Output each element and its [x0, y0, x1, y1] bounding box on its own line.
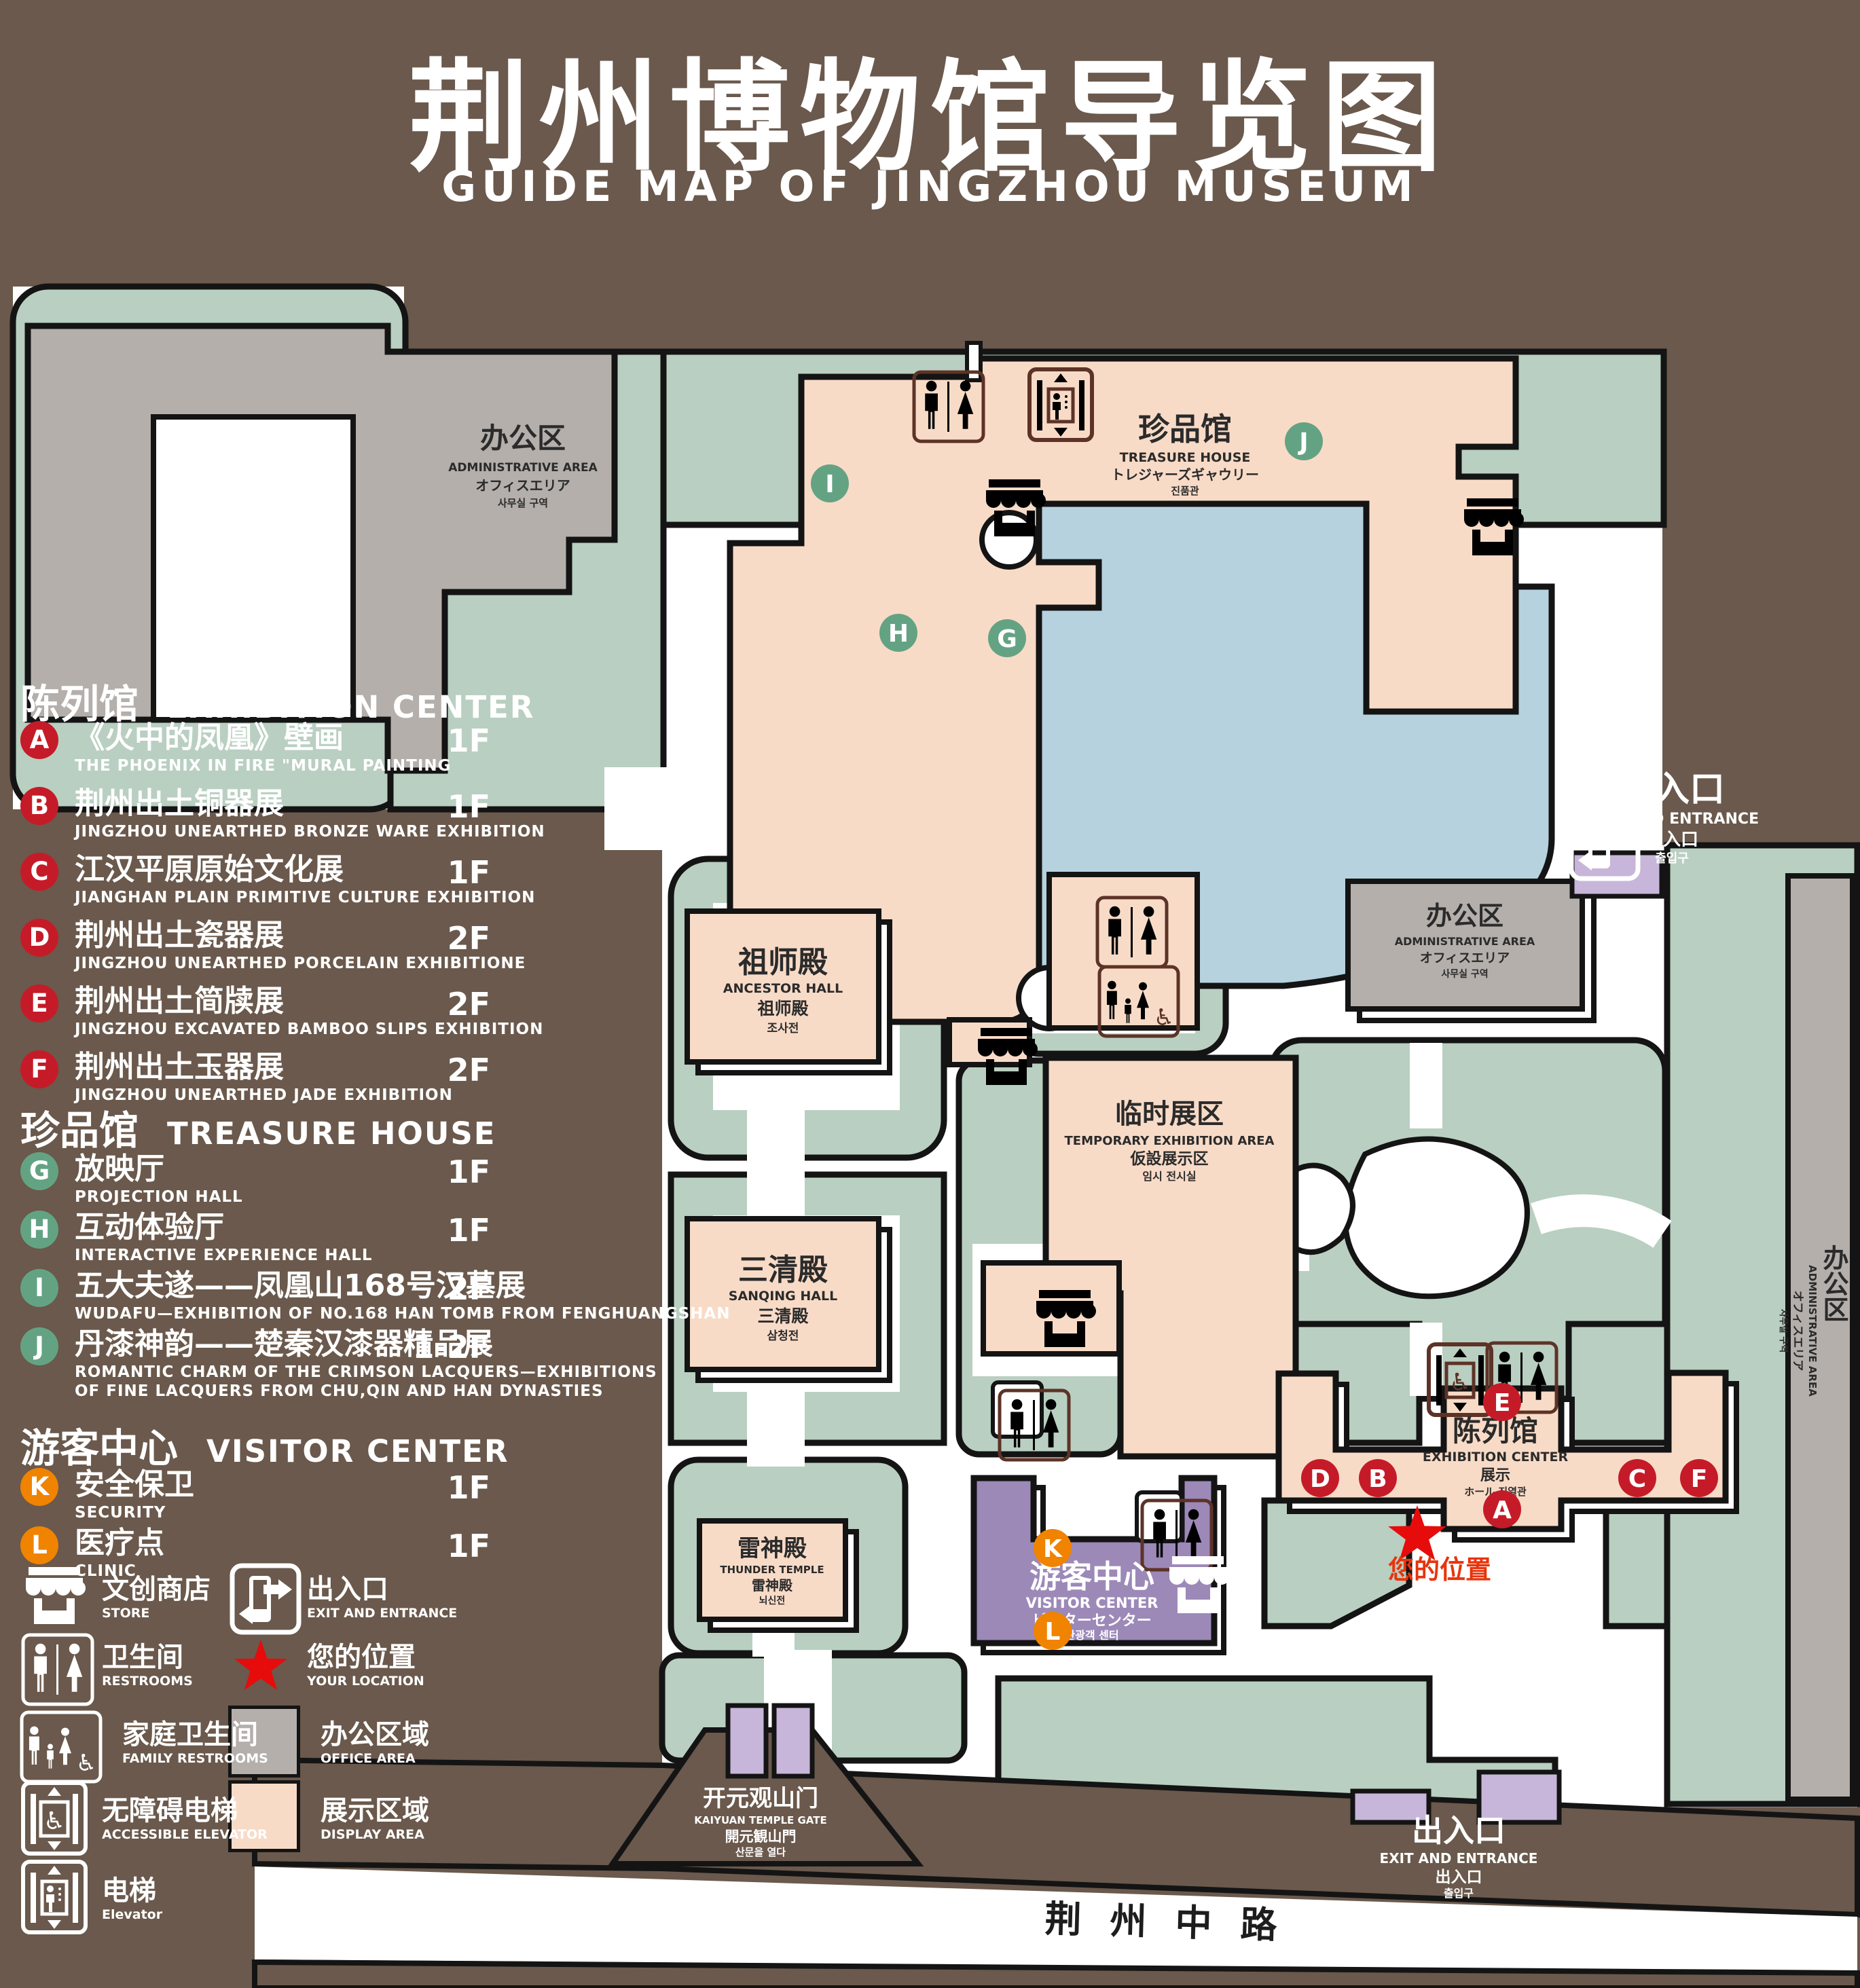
gate-label-zh: 开元观山门	[703, 1785, 818, 1812]
marker-F: F	[1680, 1459, 1718, 1497]
badge-a: A	[20, 721, 58, 759]
admin1-label-en: ADMINISTRATIVE AREA	[448, 461, 598, 475]
thunder-temple-label-zh: 雷神殿	[737, 1535, 807, 1562]
marker-K: K	[1034, 1529, 1072, 1567]
badge-c: C	[20, 853, 58, 891]
ancestor-hall-label-zh2: 祖师殿	[757, 999, 809, 1018]
legend-your-location: 您的位置YOUR LOCATION	[307, 1642, 424, 1689]
family-restroom-icon	[22, 1712, 101, 1782]
temporary-exhibition-label-en: TEMPORARY EXHIBITION AREA	[1065, 1134, 1275, 1148]
legend-item-d: D 荆州出土瓷器展 2F JINGZHOU UNEARTHED PORCELAI…	[20, 917, 490, 973]
marker-B: B	[1359, 1459, 1397, 1497]
thunder-temple-label-zh2: 雷神殿	[752, 1577, 793, 1594]
admin2-label-en: ADMINISTRATIVE AREA	[1395, 935, 1535, 948]
ancestor-hall-label-en: ANCESTOR HALL	[723, 981, 843, 996]
svg-text:C: C	[1628, 1465, 1646, 1493]
exhibition-center-label-zh2: 展示	[1480, 1467, 1510, 1484]
svg-text:オフィスエリア: オフィスエリア	[1791, 1291, 1804, 1372]
svg-text:ADMINISTRATIVE AREA: ADMINISTRATIVE AREA	[1806, 1265, 1819, 1397]
svg-text:办公区: 办公区	[1819, 1245, 1848, 1322]
badge-g: G	[20, 1152, 58, 1190]
badge-i: I	[20, 1269, 58, 1307]
svg-text:K: K	[1043, 1535, 1063, 1563]
gate-label-en: KAIYUAN TEMPLE GATE	[694, 1814, 826, 1826]
legend-family-restrooms: 家庭卫生间FAMILY RESTROOMS	[122, 1719, 268, 1767]
exit-bottom-label-zh: 出入口	[1412, 1812, 1506, 1849]
badge-j: J	[20, 1327, 58, 1365]
marker-A: A	[1483, 1490, 1521, 1528]
svg-text:L: L	[1045, 1618, 1061, 1646]
marker-I: I	[811, 464, 849, 502]
legend-office-area: 办公区域OFFICE AREA	[321, 1719, 429, 1767]
exit-bottom-label-ko: 출입구	[1444, 1887, 1474, 1900]
svg-text:사무실 구역: 사무실 구역	[1778, 1309, 1789, 1352]
sanqing-hall-label-zh2: 三清殿	[757, 1306, 809, 1326]
exit-top-label-ko: 출입구	[1655, 851, 1689, 866]
svg-text:D: D	[1310, 1465, 1330, 1493]
svg-text:A: A	[1493, 1496, 1512, 1524]
section-visitor-center: 游客中心VISITOR CENTER	[20, 1416, 632, 1473]
treasure-house-label-zh: 珍品馆	[1138, 411, 1232, 447]
admin1-label-zh: 办公区	[480, 422, 566, 455]
thunder-temple-label-ko: 뇌신전	[759, 1595, 786, 1606]
thunder-temple-label-en: THUNDER TEMPLE	[720, 1564, 824, 1576]
visitor-center-label-ko: 관광객 센터	[1065, 1629, 1118, 1642]
badge-f: F	[20, 1050, 58, 1088]
legend-restrooms: 卫生间RESTROOMS	[102, 1642, 193, 1689]
visitor-center-label-en: VISITOR CENTER	[1026, 1595, 1159, 1611]
restroom-icon	[23, 1635, 92, 1704]
svg-text:I: I	[825, 471, 834, 498]
legend-item-f: F 荆州出土玉器展 2F JINGZHOU UNEARTHED JADE EXH…	[20, 1049, 490, 1105]
legend-item-h: H 互动体验厅 1F INTERACTIVE EXPERIENCE HALL	[20, 1209, 490, 1265]
legend-item-k: K 安全保卫 1F SECURITY	[20, 1467, 490, 1522]
legend-item-c: C 江汉平原原始文化展 1F JIANGHAN PLAIN PRIMITIVE …	[20, 851, 490, 907]
exit-bottom-label-en: EXIT AND ENTRANCE	[1380, 1850, 1538, 1866]
legend-item-a: A 《火中的凤凰》壁画 1F THE PHOENIX IN FIRE "MURA…	[20, 720, 490, 775]
marker-J: J	[1285, 422, 1323, 460]
treasure-house-label-ja: トレジャーズギャウリー	[1111, 466, 1259, 483]
legend-item-j: J 丹漆神韵——楚秦汉漆器精品展 1-2F ROMANTIC CHARM OF …	[20, 1326, 490, 1401]
section-treasure-house: 珍品馆TREASURE HOUSE	[20, 1099, 632, 1156]
location-star-icon	[234, 1640, 287, 1690]
svg-text:J: J	[1297, 428, 1308, 456]
elevator-icon	[23, 1862, 86, 1932]
exit-top-label-zh: 出入口	[1619, 769, 1725, 810]
ancestor-hall-label-ko: 조사전	[767, 1022, 799, 1035]
marker-H: H	[879, 614, 917, 652]
legend-exit: 出入口EXIT AND ENTRANCE	[307, 1574, 457, 1621]
admin1-label-ko: 사무실 구역	[498, 497, 548, 509]
sanqing-hall-label-zh: 三清殿	[738, 1253, 828, 1287]
temporary-exhibition-label-zh: 临时展区	[1115, 1099, 1224, 1130]
marker-C: C	[1618, 1459, 1656, 1497]
exit-top-label-zh2: 出入口	[1645, 830, 1698, 850]
svg-text:G: G	[997, 625, 1017, 653]
marker-E: E	[1483, 1383, 1521, 1421]
svg-text:E: E	[1494, 1389, 1511, 1417]
accessible-elevator-icon	[23, 1783, 86, 1854]
svg-text:F: F	[1691, 1465, 1708, 1493]
legend-accessible-elevator: 无障碍电梯ACCESSIBLE ELEVATOR	[102, 1795, 268, 1843]
badge-k: K	[20, 1468, 58, 1506]
admin1-label-ja: オフィスエリア	[475, 477, 570, 494]
badge-d: D	[20, 919, 58, 957]
legend-item-g: G 放映厅 1F PROJECTION HALL	[20, 1151, 490, 1207]
temporary-exhibition-label-ko: 임시 전시실	[1142, 1170, 1196, 1183]
sanqing-hall-label-ko: 삼청전	[767, 1329, 799, 1343]
legend-item-b: B 荆州出土铜器展 1F JINGZHOU UNEARTHED BRONZE W…	[20, 786, 490, 841]
exit-icon	[232, 1566, 299, 1632]
road-label: 荆州中路	[1044, 1898, 1307, 1948]
temporary-exhibition-label-ja: 仮設展示区	[1130, 1149, 1209, 1168]
badge-b: B	[20, 787, 58, 825]
treasure-house-label-en: TREASURE HOUSE	[1120, 450, 1251, 465]
badge-e: E	[20, 984, 58, 1023]
your-location-label: 您的位置	[1388, 1555, 1491, 1585]
exit-bottom-label-zh2: 出入口	[1436, 1869, 1482, 1886]
sanqing-hall-label-en: SANQING HALL	[729, 1289, 837, 1304]
exhibition-center-label-en: EXHIBITION CENTER	[1423, 1450, 1569, 1465]
store-icon	[26, 1567, 86, 1624]
gate-label-ja: 開元観山門	[725, 1828, 797, 1845]
badge-h: H	[20, 1211, 58, 1249]
legend-elevator: 电梯Elevator	[102, 1875, 162, 1923]
admin2-label-zh: 办公区	[1426, 901, 1503, 931]
marker-G: G	[988, 619, 1026, 657]
legend-item-i: I 五大夫遂——凤凰山168号汉墓展 2F WUDAFU—EXHIBITION …	[20, 1268, 490, 1323]
marker-D: D	[1301, 1459, 1339, 1497]
legend-display-area: 展示区域DISPLAY AREA	[321, 1795, 429, 1843]
treasure-house-label-ko: 진품관	[1171, 485, 1199, 497]
gate-label-ko: 산문을 열다	[735, 1846, 786, 1858]
legend-item-e: E 荆州出土简牍展 2F JINGZHOU EXCAVATED BAMBOO S…	[20, 983, 490, 1039]
svg-text:H: H	[888, 620, 909, 648]
legend-store: 文创商店STORE	[102, 1574, 211, 1621]
svg-text:B: B	[1368, 1465, 1387, 1493]
admin2-label-ko: 사무실 구역	[1441, 968, 1488, 980]
ancestor-hall-label-zh: 祖师殿	[738, 945, 828, 980]
exit-top-label-en: EXIT AND ENTRANCE	[1585, 811, 1759, 828]
admin2-label-ja: オフィスエリア	[1420, 951, 1510, 965]
marker-L: L	[1034, 1612, 1072, 1650]
